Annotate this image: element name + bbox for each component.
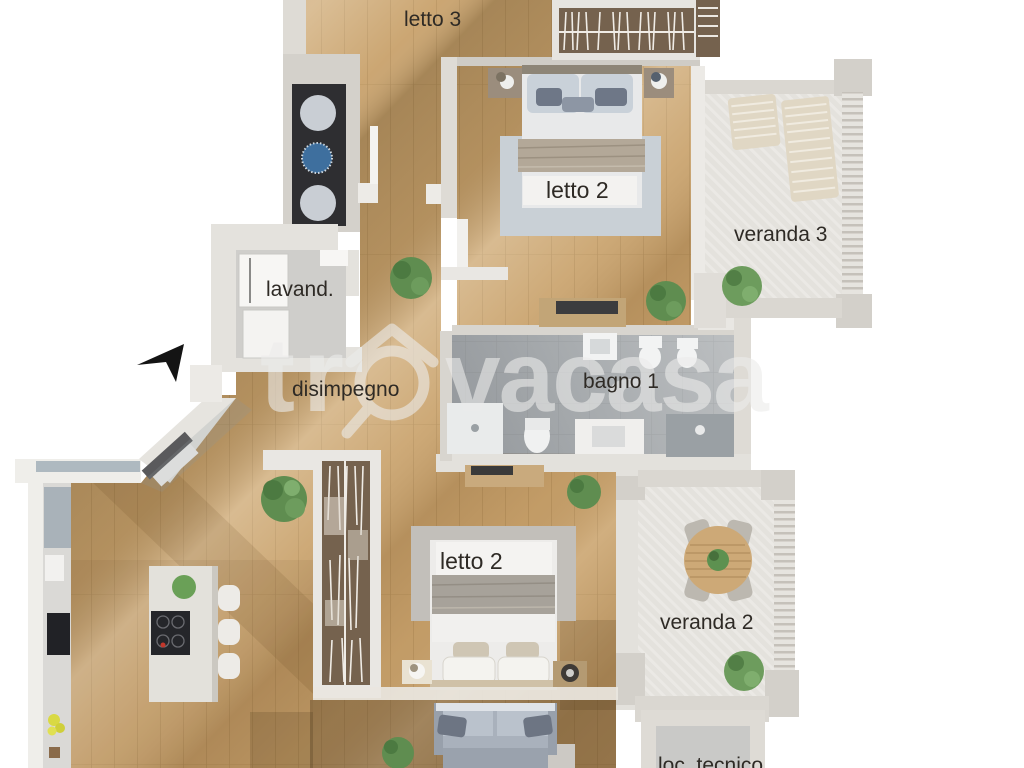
svg-text:letto 2: letto 2 bbox=[546, 177, 609, 203]
svg-text:loc. tecnico: loc. tecnico bbox=[658, 754, 763, 768]
svg-text:disimpegno: disimpegno bbox=[292, 378, 399, 401]
svg-text:veranda 3: veranda 3 bbox=[734, 223, 827, 246]
svg-text:veranda 2: veranda 2 bbox=[660, 611, 753, 634]
svg-text:tr: tr bbox=[260, 317, 352, 434]
svg-text:bagno 1: bagno 1 bbox=[583, 370, 659, 393]
svg-text:letto 3: letto 3 bbox=[404, 8, 461, 31]
svg-text:lavand.: lavand. bbox=[266, 278, 334, 301]
svg-text:letto 2: letto 2 bbox=[440, 548, 503, 574]
